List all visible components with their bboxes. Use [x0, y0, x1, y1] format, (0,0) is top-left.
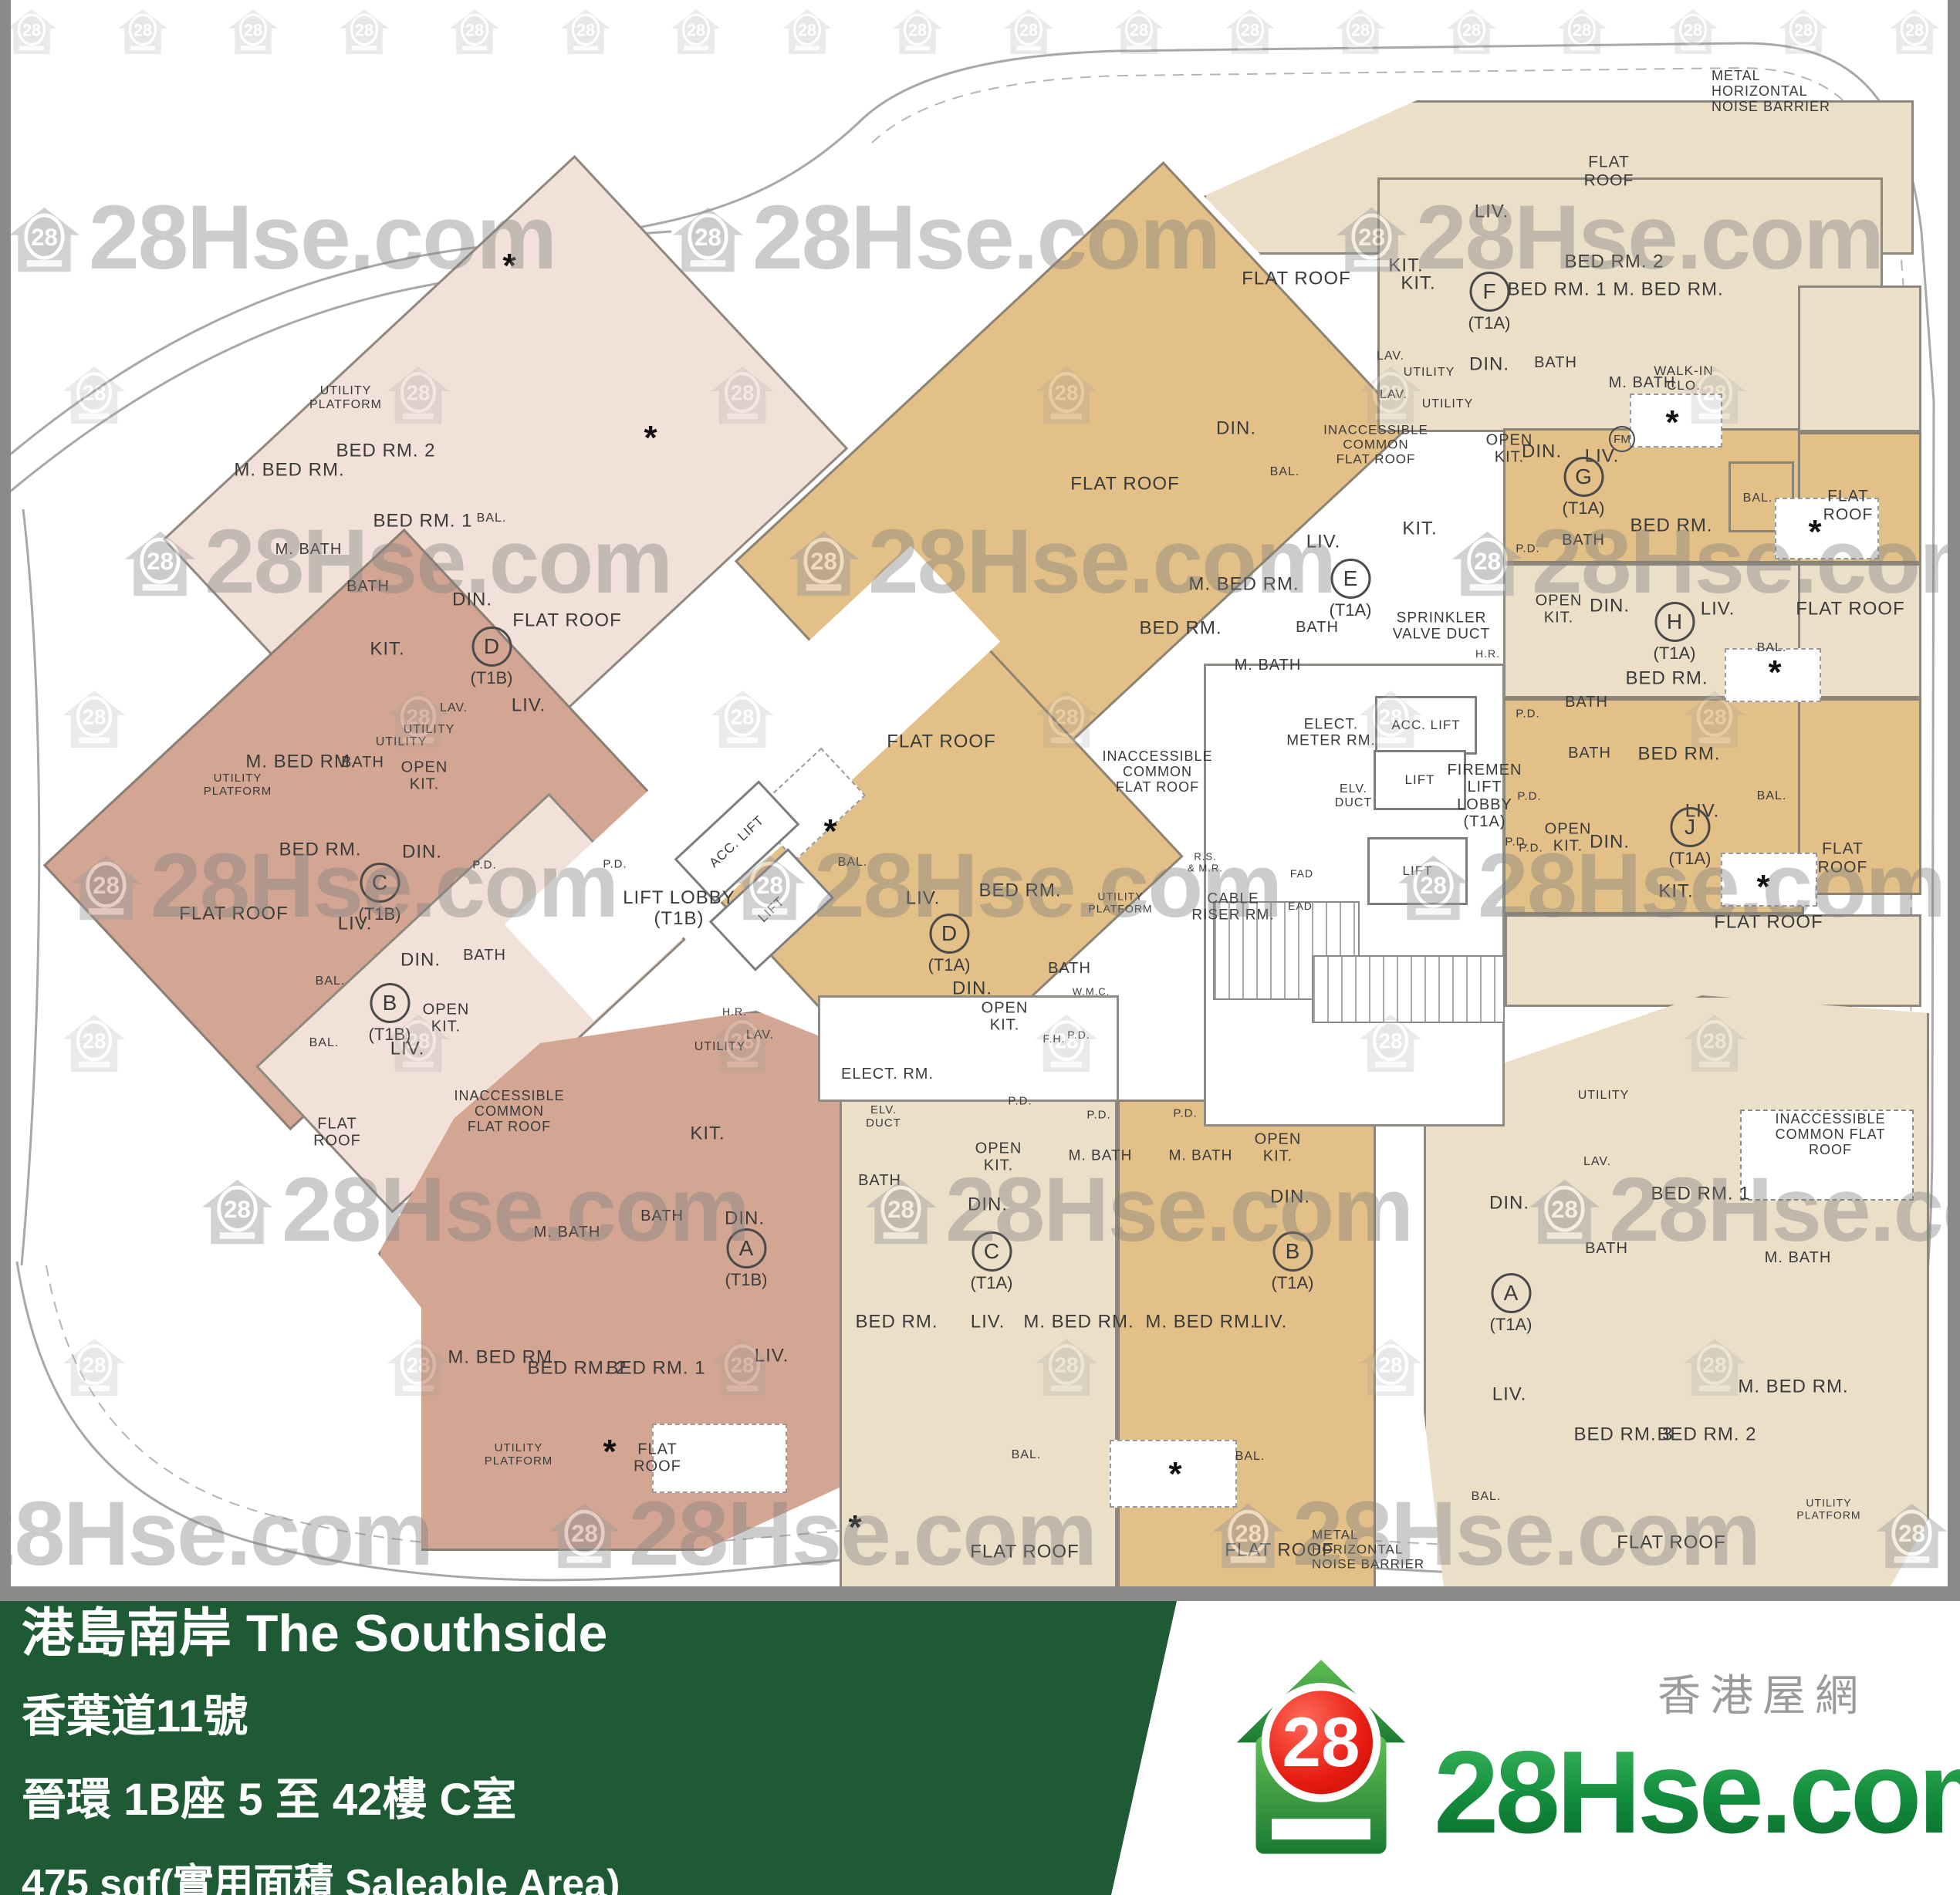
room-label: UTILITY [376, 735, 427, 749]
room-label: OPEN KIT. [1545, 821, 1592, 856]
room-label: FLAT ROOF [1584, 153, 1634, 189]
room-label: BED RM. 2 [336, 441, 435, 462]
room-label: ELV. DUCT [1335, 782, 1372, 810]
room-label: KIT. [1402, 519, 1437, 540]
unit-badge: A(T1A) [1490, 1273, 1533, 1335]
room-label: P.D. [1067, 1029, 1090, 1042]
room-label: R.S. & M.R. [1188, 851, 1223, 873]
room-label: LIV. [1475, 202, 1509, 223]
room-label: KIT. [370, 640, 404, 660]
unit-badge: FM [1609, 426, 1635, 454]
room-label: M. BATH [275, 541, 343, 558]
room-label: LIV. [1306, 532, 1341, 553]
lift-box: ACC. LIFT [1375, 696, 1477, 755]
unit-badge: F(T1A) [1468, 272, 1511, 333]
unit-type: (T1B) [359, 904, 401, 924]
room-label: FLAT ROOF [1823, 487, 1874, 523]
room-label: M. BED RM. [1738, 1377, 1848, 1398]
room-label: DIN. [400, 951, 441, 971]
asterisk-mark: * [502, 247, 515, 285]
unit-type: (T1A) [971, 1273, 1013, 1292]
room-label: DIN. [452, 590, 492, 611]
room-label: M. BED RM. [1613, 280, 1723, 301]
room-label: M. BED RM. [1023, 1312, 1134, 1333]
room-label: LAV. [1377, 350, 1404, 363]
unit-type: (T1B) [369, 1025, 411, 1044]
room-label: FLAT ROOF [887, 732, 995, 753]
28hse-logo[interactable]: 28 28Hse.com 香港屋網 [1232, 1657, 1941, 1888]
room-label: P.D. [1517, 791, 1541, 804]
room-label: P.D. [1086, 1110, 1110, 1123]
unit-letter: F [1469, 272, 1509, 312]
asterisk-mark: * [603, 1433, 616, 1471]
room-label: BED RM. [1139, 619, 1222, 640]
asterisk-mark: * [644, 419, 657, 458]
room-label: BATH [640, 1208, 684, 1224]
asterisk-mark: * [1808, 513, 1821, 552]
room-label: LAV. [1380, 388, 1407, 402]
room-label: FLAT ROOF [1796, 600, 1904, 620]
room-label: BED RM. 2 [1657, 1425, 1756, 1446]
room-label: FLAT ROOF [179, 904, 288, 925]
unit-type: (T1B) [471, 668, 513, 687]
room-label: UTILITY PLATFORM [204, 772, 272, 799]
room-label: LIV. [1701, 600, 1735, 620]
room-label: BAL. [838, 856, 868, 870]
room-label: BED RM. [1637, 745, 1720, 765]
room-label: UTILITY [1404, 366, 1455, 380]
room-label: BAL. [1757, 789, 1787, 803]
unit-type: (T1A) [1669, 849, 1712, 868]
room-label: DIN. [725, 1209, 765, 1230]
room-label: M. BED RM. [234, 461, 344, 481]
room-label: LIFT LOBBY (T1B) [623, 888, 735, 930]
room-label: BATH [346, 578, 390, 595]
room-label: BATH [1585, 1240, 1628, 1257]
unit-badge: B(T1A) [1272, 1231, 1314, 1293]
unit-type: (T1A) [1654, 643, 1696, 663]
room-label: BAL. [1235, 1450, 1266, 1464]
frame-bottom-bar [0, 1586, 1960, 1601]
unit-type: (T1A) [1490, 1315, 1533, 1334]
room-label: LIV. [971, 1312, 1005, 1333]
room-label: OPEN KIT. [975, 1140, 1022, 1175]
room-label: INACCESSIBLE COMMON FLAT ROOF [1102, 748, 1212, 795]
room-label: M. BATH [534, 1224, 601, 1241]
room-label: FLAT ROOF [1714, 913, 1823, 934]
room-label: W.M.C. [1073, 987, 1110, 998]
unit-letter: C [360, 863, 400, 903]
room-label: DIN. [402, 843, 442, 863]
asterisk-mark: * [1665, 404, 1678, 442]
room-label: F.H. [1043, 1033, 1066, 1045]
property-address: 香葉道11號 [22, 1680, 620, 1745]
room-label: BATH [1568, 745, 1611, 762]
room-label: BED RM. [855, 1312, 938, 1333]
unit-badge: B(T1B) [369, 983, 411, 1045]
room-label: BED RM. 1 [1651, 1184, 1750, 1205]
lift-box: LIFT [1367, 837, 1468, 905]
room-label: FLAT ROOF [1617, 1533, 1725, 1554]
unit-badge: A(T1B) [725, 1228, 768, 1290]
room-label: BATH [1296, 619, 1339, 636]
room-label: BATH [341, 754, 384, 771]
room-label: BATH [1565, 694, 1608, 711]
room-label: FIREMEN LIFT LOBBY (T1A) [1448, 762, 1522, 831]
unit-badge: D(T1A) [928, 914, 971, 975]
room-label: ELECT. METER RM. [1286, 717, 1376, 750]
room-label: OPEN KIT. [1255, 1131, 1302, 1166]
asterisk-mark: * [823, 812, 836, 851]
room-label: INACCESSIBLE COMMON FLAT ROOF [454, 1088, 564, 1134]
brand-tagline: 香港屋網 [1658, 1661, 1867, 1724]
property-area: 475 sqf(實用面積 Saleable Area) [22, 1851, 620, 1895]
room-label: BED RM. [279, 840, 361, 861]
unit-letter: H [1654, 602, 1695, 642]
room-label: UTILITY [1578, 1089, 1630, 1103]
room-label: WALK-IN CLO. [1654, 363, 1713, 393]
unit-badge: H(T1A) [1654, 602, 1696, 664]
room-label: ELV. DUCT [866, 1104, 901, 1130]
unit-letter: A [726, 1228, 766, 1268]
frame-right [1948, 0, 1960, 1601]
unit-letter: C [972, 1231, 1012, 1272]
unit-type: (T1A) [1468, 313, 1511, 333]
unit-letter: J [1670, 807, 1710, 847]
room-label: M. BATH [1235, 657, 1302, 674]
room-label: DIN. [968, 1195, 1008, 1216]
room-label: M. BATH [1069, 1147, 1133, 1164]
footer: 港島南岸 The Southside 香葉道11號 晉環 1B座 5 至 42樓… [0, 1601, 1960, 1895]
room-label: INACCESSIBLE COMMON FLAT ROOF [1766, 1111, 1895, 1157]
brand-wordmark: 28Hse.com [1434, 1734, 1960, 1851]
room-label: BATH [1534, 354, 1577, 371]
unit-badge: J(T1A) [1669, 807, 1712, 869]
room-label: BED RM. [1625, 669, 1708, 690]
room-label: P.D. [1516, 543, 1539, 556]
room-label: KIT. [1401, 274, 1435, 295]
unit-letter: A [1491, 1273, 1531, 1313]
unit-letter: FM [1609, 426, 1635, 452]
room-label: UTILITY [694, 1040, 746, 1054]
unit-type: (T1B) [725, 1270, 768, 1289]
room-label: BAL. [1270, 465, 1300, 479]
unit-letter: G [1563, 457, 1603, 497]
room-label: M. BED RM. [245, 752, 356, 773]
room-label: FLAT ROOF [1242, 269, 1350, 290]
room-label: BED RM. 2 [1564, 252, 1664, 273]
room-label: BED RM. [1630, 516, 1712, 537]
room-label: OPEN KIT. [982, 1000, 1029, 1035]
room-label: OPEN KIT. [423, 1002, 470, 1036]
room-label: FLAT ROOF [1818, 839, 1868, 876]
unit-letter: B [370, 983, 410, 1023]
room-label: UTILITY PLATFORM [309, 384, 382, 412]
unit-type: (T1A) [1330, 600, 1372, 620]
room-label: FLAT ROOF [313, 1116, 361, 1150]
room-label: ELECT. RM. [841, 1066, 934, 1083]
floorplan-page: ACC. LIFTLIFTACC. LIFTLIFTLIFTUTILITY PL… [0, 0, 1960, 1895]
region-fr-col-1 [1798, 285, 1921, 432]
asterisk-mark: * [1168, 1455, 1181, 1494]
room-label: FLAT ROOF [970, 1542, 1079, 1563]
room-label: EAD [1288, 900, 1313, 913]
room-label: BAL. [1472, 1490, 1502, 1504]
unit-badge: C(T1A) [971, 1231, 1013, 1293]
room-label: CABLE RISER RM. [1191, 891, 1274, 924]
room-label: P.D. [603, 859, 627, 872]
region-corridor-c [818, 995, 1119, 1102]
room-label: KIT. [1388, 256, 1423, 277]
unit-letter: D [471, 627, 512, 667]
room-label: OPEN KIT. [401, 759, 448, 794]
room-label: LIV. [512, 696, 546, 717]
room-label: BATH [463, 947, 506, 964]
room-label: BED RM. [978, 881, 1061, 902]
unit-badge: G(T1A) [1563, 457, 1605, 519]
room-label: DIN. [1522, 442, 1562, 463]
room-label: LAV. [440, 701, 468, 715]
room-label: LAV. [1583, 1155, 1611, 1169]
room-label: UTILITY PLATFORM [485, 1442, 553, 1468]
asterisk-mark: * [848, 1508, 861, 1547]
room-label: P.D. [1505, 836, 1529, 850]
room-label: M. BED RM. [1188, 575, 1299, 596]
room-label: SPRINKLER VALVE DUCT [1393, 610, 1491, 643]
room-label: H.R. [722, 1006, 747, 1018]
room-label: BAL. [316, 975, 346, 988]
property-info: 港島南岸 The Southside 香葉道11號 晉環 1B座 5 至 42樓… [22, 1607, 620, 1895]
room-label: M. BED RM. [1145, 1312, 1255, 1333]
room-label: BED RM. 1 [606, 1359, 705, 1380]
floorplan-drawing: ACC. LIFTLIFTACC. LIFTLIFTLIFTUTILITY PL… [0, 0, 1960, 1586]
room-label: M. BATH [1169, 1147, 1233, 1164]
unit-letter: D [929, 914, 969, 954]
28hse-house-icon: 28 [1232, 1657, 1411, 1863]
room-label: OPEN KIT. [1536, 593, 1583, 627]
room-label: UTILITY PLATFORM [1088, 890, 1152, 914]
room-label: BED RM. 1 [1507, 280, 1607, 301]
asterisk-mark: * [1756, 868, 1769, 907]
room-label: INACCESSIBLE COMMON FLAT ROOF [1323, 422, 1428, 466]
room-label: DIN. [1590, 596, 1630, 617]
room-label: BED RM. 1 [373, 512, 472, 532]
room-label: DIN. [1590, 833, 1630, 853]
unit-letter: E [1330, 559, 1370, 599]
staircase [1312, 955, 1505, 1023]
room-label: H.R. [1475, 648, 1500, 660]
unit-type: (T1A) [1272, 1273, 1314, 1292]
room-label: BAL. [309, 1036, 340, 1050]
room-label: BATH [858, 1172, 901, 1189]
unit-badge: D(T1B) [471, 627, 513, 688]
room-label: LIV. [906, 889, 941, 910]
room-label: P.D. [1173, 1108, 1197, 1121]
room-label: UTILITY [1422, 397, 1474, 411]
unit-badge: C(T1B) [359, 863, 401, 924]
room-label: DIN. [1489, 1194, 1529, 1214]
unit-type: (T1A) [928, 955, 971, 975]
room-label: LIV. [1253, 1312, 1288, 1333]
property-title: 港島南岸 The Southside [22, 1607, 620, 1660]
room-label: DIN. [1270, 1187, 1310, 1208]
frame-left [0, 0, 11, 1601]
room-label: BAL. [1012, 1448, 1042, 1462]
room-label: LIV. [1492, 1385, 1527, 1406]
room-label: DIN. [1216, 419, 1256, 440]
room-label: LAV. [746, 1029, 774, 1042]
room-label: METAL HORIZONTAL NOISE BARRIER [1312, 1527, 1424, 1571]
room-label: KIT. [1658, 882, 1693, 903]
svg-text:28: 28 [1282, 1704, 1360, 1782]
room-label: UTILITY PLATFORM [1796, 1497, 1860, 1521]
room-label: BAL. [477, 512, 507, 525]
room-label: FLAT ROOF [1070, 475, 1179, 495]
room-label: P.D. [472, 860, 496, 873]
room-label: BAL. [1743, 491, 1773, 505]
unit-type: (T1A) [1563, 498, 1605, 518]
room-label: P.D. [1008, 1096, 1032, 1109]
property-unit: 晉環 1B座 5 至 42樓 C室 [22, 1763, 620, 1828]
region-fr-band [1505, 914, 1921, 1007]
unit-badge: E(T1A) [1330, 559, 1372, 620]
asterisk-mark: * [1768, 654, 1781, 692]
room-label: M. BATH [1765, 1249, 1832, 1266]
room-label: DIN. [1469, 355, 1509, 376]
room-label: KIT. [690, 1124, 725, 1145]
room-label: P.D. [1516, 708, 1539, 721]
room-label: BATH [1048, 960, 1091, 977]
room-label: FAD [1290, 868, 1313, 880]
room-label: METAL HORIZONTAL NOISE BARRIER [1712, 68, 1830, 114]
room-label: LIV. [755, 1346, 789, 1367]
room-label: DIN. [952, 979, 992, 1000]
room-label: FLAT ROOF [512, 611, 621, 632]
room-label: FLAT ROOF [634, 1441, 681, 1476]
unit-letter: B [1272, 1231, 1313, 1272]
room-label: BATH [1562, 532, 1605, 549]
